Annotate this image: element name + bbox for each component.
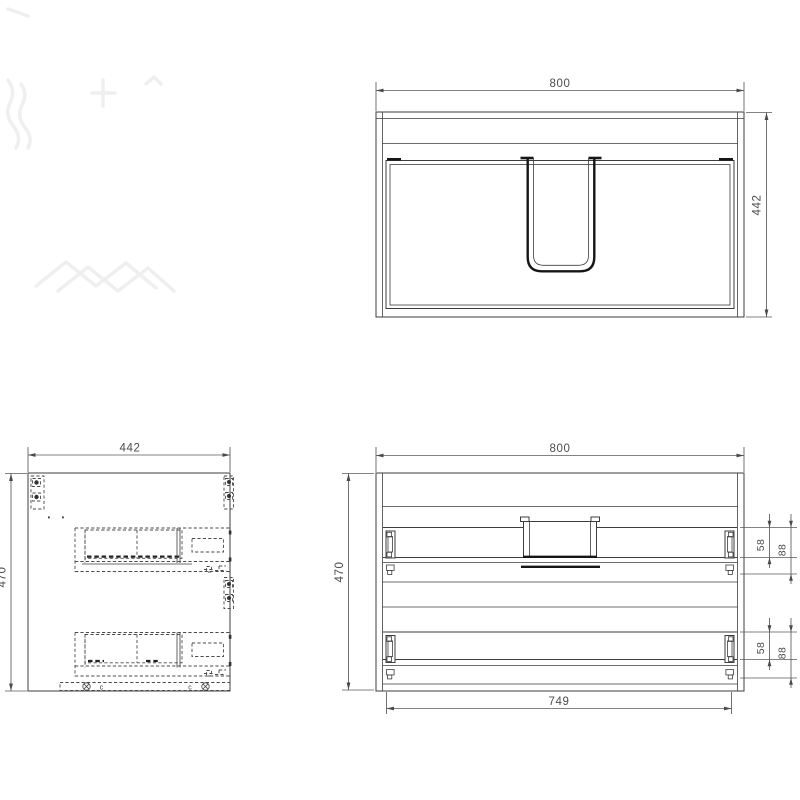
drawer-slide-bracket-right xyxy=(725,636,734,679)
recess-tab-right xyxy=(591,517,600,522)
back-dimension-inner-width: 749 xyxy=(387,692,732,714)
dim-arrow xyxy=(789,678,793,685)
bracket-foot xyxy=(726,565,734,570)
recess-opening xyxy=(523,522,597,558)
bracket-foot xyxy=(387,670,395,675)
bottom-mounting-strip: c c xyxy=(60,683,230,692)
drawer-slide-bracket-right xyxy=(725,531,734,574)
cabinet-outline xyxy=(376,112,744,317)
side-view: 442 470 xyxy=(0,443,234,692)
watermark-stroke xyxy=(146,77,161,84)
plan-view: 800 442 xyxy=(376,78,772,317)
drawer-side-hidden xyxy=(85,635,182,663)
lower-drawer-dimensions: 58 88 xyxy=(740,618,797,688)
cabinet-opening xyxy=(386,161,734,309)
dim-label-back-width: 800 xyxy=(550,443,571,455)
dim-arrow xyxy=(768,625,772,632)
dim-label-lower-58: 58 xyxy=(755,642,767,654)
plumbing-cutout xyxy=(521,158,602,271)
recess-tab-left xyxy=(521,517,530,522)
edge-tick xyxy=(229,531,232,535)
bracket-foot-screw xyxy=(728,570,732,574)
strip-marker-right: c xyxy=(188,685,192,692)
cam-dowel-icon xyxy=(227,494,231,498)
dim-arrow xyxy=(789,521,793,528)
side-panel-outline xyxy=(28,473,230,691)
edge-tick xyxy=(229,662,232,666)
upper-drawer-dimensions: 58 88 xyxy=(740,514,797,584)
side-dimension-width: 442 xyxy=(28,443,230,473)
cutout-inner-edge xyxy=(534,158,589,265)
slide-body-hidden xyxy=(192,539,224,553)
watermark-stroke xyxy=(8,80,19,148)
edge-tick xyxy=(229,558,232,562)
cam-dowel-icon xyxy=(34,480,38,484)
dim-label-top-width: 800 xyxy=(550,78,571,90)
cam-dowel-icon xyxy=(227,596,231,600)
back-dimension-height: 470 xyxy=(334,474,374,691)
dim-arrow-bottom xyxy=(765,310,769,318)
dim-arrow-top xyxy=(347,474,351,482)
cam-dowel-icon xyxy=(34,495,38,499)
dim-label-top-depth: 442 xyxy=(752,195,764,216)
bracket-foot xyxy=(387,565,395,570)
technical-drawing-canvas: 800 442 xyxy=(0,0,800,800)
slide-body-hidden xyxy=(192,643,224,657)
bracket-foot-screw xyxy=(388,570,392,574)
drawer-slide-bracket-left xyxy=(386,531,395,574)
dim-arrow-left xyxy=(387,707,395,711)
pilot-hole-dot xyxy=(48,517,50,519)
watermark-stroke xyxy=(92,80,115,106)
lower-drawer-back: 58 88 xyxy=(383,618,797,688)
dim-arrow xyxy=(768,660,772,667)
dim-arrow xyxy=(768,558,772,565)
bracket-foot-screw xyxy=(728,675,732,679)
dim-arrow-right xyxy=(737,454,745,458)
dim-arrow-left xyxy=(376,89,384,93)
dim-arrow xyxy=(789,574,793,581)
watermark-stroke xyxy=(8,9,28,16)
dim-arrow xyxy=(789,625,793,632)
cam-fitting-middle-right xyxy=(224,578,234,609)
cam-dowel-icon xyxy=(227,480,231,484)
back-dimension-width: 800 xyxy=(376,443,744,472)
watermark xyxy=(8,9,174,291)
cabinet-opening-inner xyxy=(390,165,730,306)
dim-label-inner-width: 749 xyxy=(549,696,570,708)
upper-drawer-hidden-detail xyxy=(75,528,231,572)
dim-label-back-height: 470 xyxy=(334,562,346,583)
dim-arrow-top xyxy=(9,474,13,482)
cam-dowel-icon xyxy=(227,582,231,586)
dim-label-side-height: 470 xyxy=(0,567,9,588)
dim-label-lower-88: 88 xyxy=(777,647,789,659)
dim-arrow-left xyxy=(376,454,384,458)
dim-arrow-left xyxy=(28,453,36,457)
plan-dimension-width: 800 xyxy=(376,78,744,111)
dim-label-upper-88: 88 xyxy=(777,544,789,556)
cam-fitting-top-right xyxy=(224,476,234,509)
back-view: 800 470 xyxy=(334,443,797,714)
dim-arrow-right xyxy=(737,89,745,93)
strip-marker-left: c xyxy=(100,685,104,692)
side-dimension-height: 470 xyxy=(0,474,27,692)
cam-fitting-top-left xyxy=(31,476,44,509)
pilot-hole-dot xyxy=(62,517,64,519)
dim-label-side-width: 442 xyxy=(120,443,141,455)
dim-arrow-bottom xyxy=(347,683,351,691)
strip-outline xyxy=(60,683,230,691)
dim-arrow-right xyxy=(223,453,231,457)
lower-drawer-hidden-detail xyxy=(75,633,231,677)
bracket-foot xyxy=(726,670,734,675)
upper-drawer-back: 58 88 xyxy=(383,514,797,584)
cutout-outer-edge xyxy=(528,158,595,271)
drawer-side-hidden xyxy=(85,530,182,558)
dim-label-upper-58: 58 xyxy=(755,539,767,551)
dim-arrow-right xyxy=(724,707,732,711)
bracket-foot-screw xyxy=(388,675,392,679)
dim-arrow xyxy=(768,521,772,528)
plan-dimension-depth: 442 xyxy=(746,113,772,318)
edge-tick xyxy=(229,635,232,639)
dim-arrow-bottom xyxy=(9,684,13,692)
watermark-stroke xyxy=(20,84,30,148)
drawer-slide-bracket-left xyxy=(386,636,395,679)
dim-arrow-top xyxy=(765,113,769,121)
drain-recess xyxy=(521,517,601,567)
